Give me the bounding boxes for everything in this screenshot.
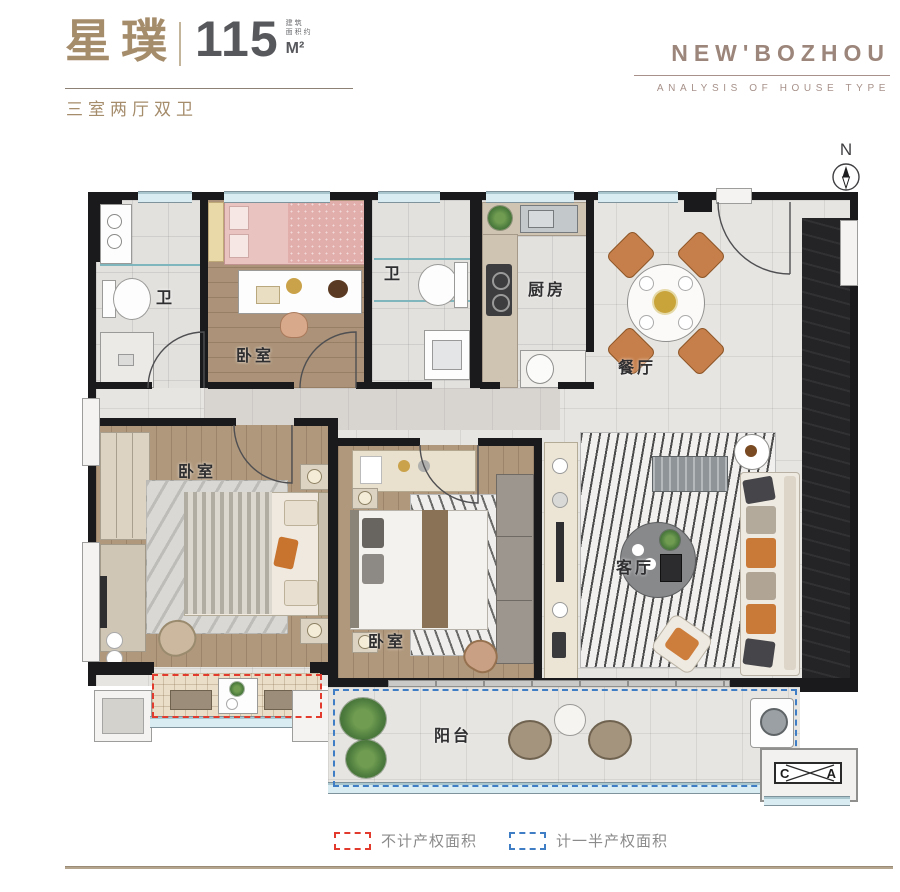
toilet-bath1	[113, 278, 151, 320]
label-dining: 餐厅	[618, 354, 656, 378]
wall-kitchen-dining	[586, 200, 594, 352]
toilet-bath2	[418, 264, 458, 306]
half-property-area-outline	[333, 689, 797, 787]
feature-wall	[802, 218, 850, 684]
area-note-top: 建筑	[286, 19, 313, 28]
lamp-icon	[307, 623, 322, 638]
pillow-icon	[229, 206, 249, 230]
label-kitchen: 厨房	[528, 276, 566, 300]
ac-marker: C A	[774, 762, 842, 784]
window-frame-left	[82, 398, 100, 466]
label-bath-top-mid: 卫	[384, 260, 403, 284]
tv-panel-master	[100, 576, 107, 628]
sofa-back-icon	[784, 476, 796, 670]
header: 星璞 115 建筑 面积约 M²	[65, 16, 313, 67]
wardrobe-line	[116, 432, 117, 538]
bed-runner-icon	[422, 510, 448, 628]
wall-bottom-right	[792, 678, 858, 692]
sofa-cushion-icon	[746, 506, 776, 534]
headboard-bedroom-middle	[350, 510, 359, 628]
floor-corridor	[204, 388, 560, 430]
legend: 不计产权面积 计一半产权面积	[334, 830, 668, 851]
table-centerpiece-icon	[654, 291, 676, 313]
window-kitchen	[486, 191, 574, 203]
tv-bench-living	[652, 456, 728, 492]
legend-item-half-property: 计一半产权面积	[509, 830, 668, 851]
blanket-bedroom-top	[288, 201, 366, 263]
sliding-door-balcony	[388, 680, 730, 687]
desk-decor-icon	[328, 280, 348, 298]
window-bath1	[138, 191, 192, 203]
burner-icon	[492, 294, 510, 312]
water-heater-icon	[526, 354, 554, 384]
compass-north-label: N	[824, 140, 868, 160]
pillow-icon	[229, 234, 249, 258]
wall-kitchen-bottom	[558, 382, 594, 389]
title-divider	[179, 22, 181, 66]
non-property-area-outline	[152, 674, 322, 718]
desk-decor-icon	[398, 460, 410, 472]
blanket-master	[184, 492, 272, 614]
sofa-cushion-icon	[742, 476, 776, 505]
area-note-bottom: 面积约	[286, 28, 313, 37]
area-unit: M²	[286, 40, 313, 58]
pillar-entry	[684, 192, 712, 212]
window-bath2	[378, 191, 440, 203]
page-title: 星璞	[65, 16, 177, 67]
pillow-icon	[284, 580, 318, 606]
floorplan-page: 星璞 115 建筑 面积约 M² 三室两厅双卫 NEW'BOZHOU ANALY…	[0, 0, 900, 892]
ac-marker-right: A	[827, 767, 836, 780]
wall-bath2-bottom	[372, 382, 432, 389]
decor-icon	[552, 458, 568, 474]
wardrobe-line	[496, 600, 532, 601]
sofa-cushion-icon	[746, 538, 776, 568]
label-bedroom-top: 卧室	[236, 342, 274, 366]
sink-basin-icon	[432, 340, 462, 370]
wall-bedroom2-top	[478, 438, 538, 446]
decor-icon	[552, 602, 568, 618]
desk-decor-icon	[418, 460, 430, 472]
chair-bedroom-top	[280, 312, 308, 338]
label-living: 客厅	[616, 554, 654, 578]
label-bath-top-left: 卫	[156, 284, 175, 308]
wardrobe-line	[496, 536, 532, 537]
label-balcony: 阳台	[434, 722, 472, 746]
wall-bedroom2-right	[534, 438, 542, 683]
lamp-icon	[307, 469, 322, 484]
compass: N	[824, 140, 868, 199]
sink-bowl-icon	[107, 234, 122, 249]
decor-icon	[552, 632, 566, 658]
plate-icon	[639, 315, 654, 330]
cabinet-bedroom-top	[208, 202, 224, 262]
footer-rule	[65, 866, 893, 869]
toilet-tank-bath2	[454, 262, 468, 308]
burner-icon	[492, 272, 510, 290]
decor-icon	[552, 492, 568, 508]
sink-basin-icon	[528, 210, 554, 228]
legend-red-dashed-icon	[334, 832, 371, 850]
wall-bedroom-top-bottom	[356, 382, 372, 389]
wall-bath1-bottom	[96, 382, 152, 389]
shower-glass-bath1	[100, 264, 204, 266]
window-frame-entry	[716, 188, 752, 204]
floor-plan: C A 卫 卧室 卫 厨房 餐厅 卧室 卧室 客厅 阳台	[88, 192, 858, 812]
desk-decor-icon	[286, 278, 302, 294]
wall-bedroom-bath2	[364, 200, 372, 388]
sofa-cushion-icon	[746, 572, 776, 600]
window-frame-left	[82, 542, 100, 662]
wall-bath2-kitchen	[470, 200, 482, 388]
lamp-icon	[358, 491, 372, 505]
plate-icon	[678, 276, 693, 291]
area-value: 115	[195, 16, 279, 64]
stool-icon	[106, 632, 123, 649]
window-dining	[598, 191, 678, 203]
brand-tagline: ANALYSIS OF HOUSE TYPE	[590, 83, 890, 94]
label-bedroom-master: 卧室	[178, 458, 216, 482]
bay-frame-inner	[102, 698, 144, 734]
sofa-cushion-icon	[742, 638, 775, 668]
compass-icon	[824, 160, 868, 194]
title-rule	[65, 88, 353, 89]
plate-icon	[639, 276, 654, 291]
pillow-icon	[362, 518, 384, 548]
window-frame-right	[840, 220, 858, 286]
cup-icon	[745, 445, 757, 457]
wardrobe-master	[100, 432, 150, 540]
wall-kitchen-bottom	[480, 382, 500, 389]
brand-name: NEW'BOZHOU	[590, 40, 890, 67]
wardrobe-line	[132, 432, 133, 538]
legend-label: 计一半产权面积	[556, 830, 668, 851]
brand-rule	[634, 75, 890, 76]
wardrobe-bedroom-middle	[496, 474, 534, 664]
tray-icon	[660, 554, 682, 582]
brand-block: NEW'BOZHOU ANALYSIS OF HOUSE TYPE	[590, 40, 890, 94]
sofa-cushion-icon	[746, 604, 776, 634]
book-icon	[256, 286, 280, 304]
wall-master-bottom	[96, 662, 154, 675]
layout-subtitle: 三室两厅双卫	[66, 95, 198, 120]
wall-master-top	[96, 418, 236, 426]
decor-icon	[556, 522, 564, 582]
sink-bowl-icon	[107, 214, 122, 229]
wall-bedroom-top-bottom	[208, 382, 294, 389]
wall-master-bedroom2	[328, 418, 338, 680]
wall-bath1-bedroom	[200, 200, 208, 388]
drain-icon	[118, 354, 134, 366]
desk-decor-icon	[360, 456, 382, 484]
window-bedroom-top	[224, 191, 330, 203]
legend-item-non-property: 不计产权面积	[334, 830, 477, 851]
area-side: 建筑 面积约 M²	[286, 19, 313, 58]
legend-blue-dashed-icon	[509, 832, 546, 850]
pillow-icon	[362, 554, 384, 584]
label-bedroom-middle: 卧室	[368, 628, 406, 652]
plate-icon	[678, 315, 693, 330]
kitchen-plant-icon	[488, 206, 512, 230]
ac-platform-glass	[764, 796, 850, 806]
wall-bedroom2-top	[338, 438, 420, 446]
legend-label: 不计产权面积	[381, 830, 477, 851]
pillow-icon	[284, 500, 318, 526]
plant-icon	[660, 530, 680, 550]
ac-marker-left: C	[780, 767, 789, 780]
